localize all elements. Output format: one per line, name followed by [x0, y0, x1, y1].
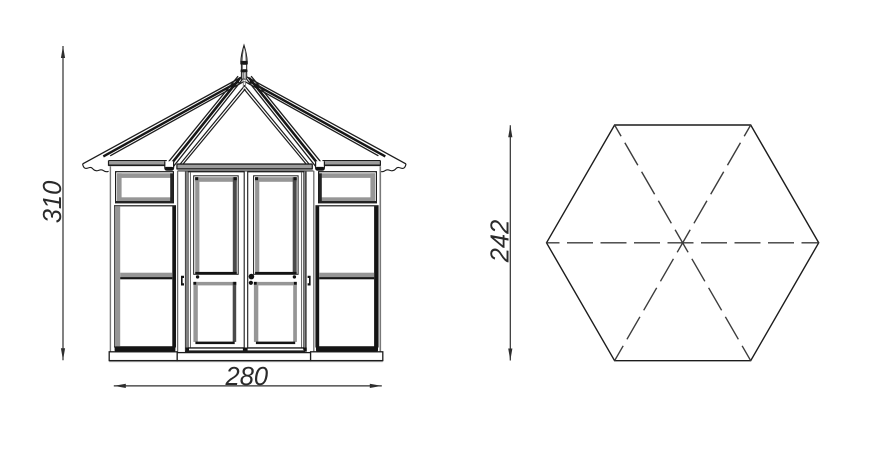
- svg-text:310: 310: [39, 181, 67, 224]
- svg-text:280: 280: [225, 363, 269, 391]
- svg-text:242: 242: [487, 220, 515, 264]
